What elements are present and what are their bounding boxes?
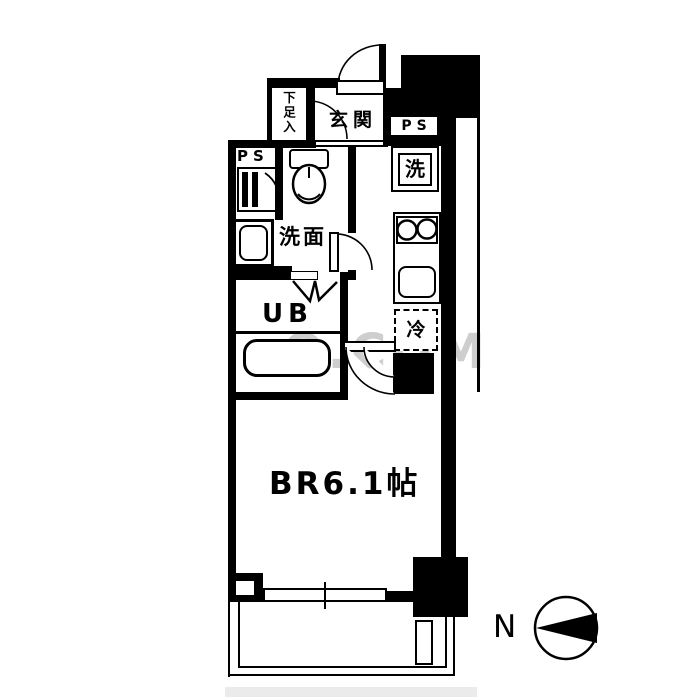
- entrance-label: 玄関: [329, 105, 377, 132]
- sliding-window-center-tick: [324, 582, 326, 609]
- floor-plan: O.COM: [0, 0, 700, 700]
- washroom-label: 洗面: [279, 221, 327, 251]
- ps-right-label: PS: [391, 117, 437, 135]
- stove-burner-right: [418, 220, 437, 239]
- refrigerator-label: 冷: [394, 310, 438, 350]
- compass-north-label: N: [493, 609, 516, 645]
- stove-burner-left: [398, 221, 417, 240]
- bedroom-label: BR6.1帖: [269, 458, 420, 503]
- ps-left-label: PS: [237, 147, 269, 165]
- unit-bath-label: UB: [262, 299, 313, 329]
- bifold-bath-door: [293, 281, 337, 301]
- washing-machine-label: 洗: [398, 153, 432, 186]
- compass: [535, 597, 597, 659]
- compass-needle: [536, 613, 597, 643]
- shoe-storage-label: 下足入: [279, 91, 298, 135]
